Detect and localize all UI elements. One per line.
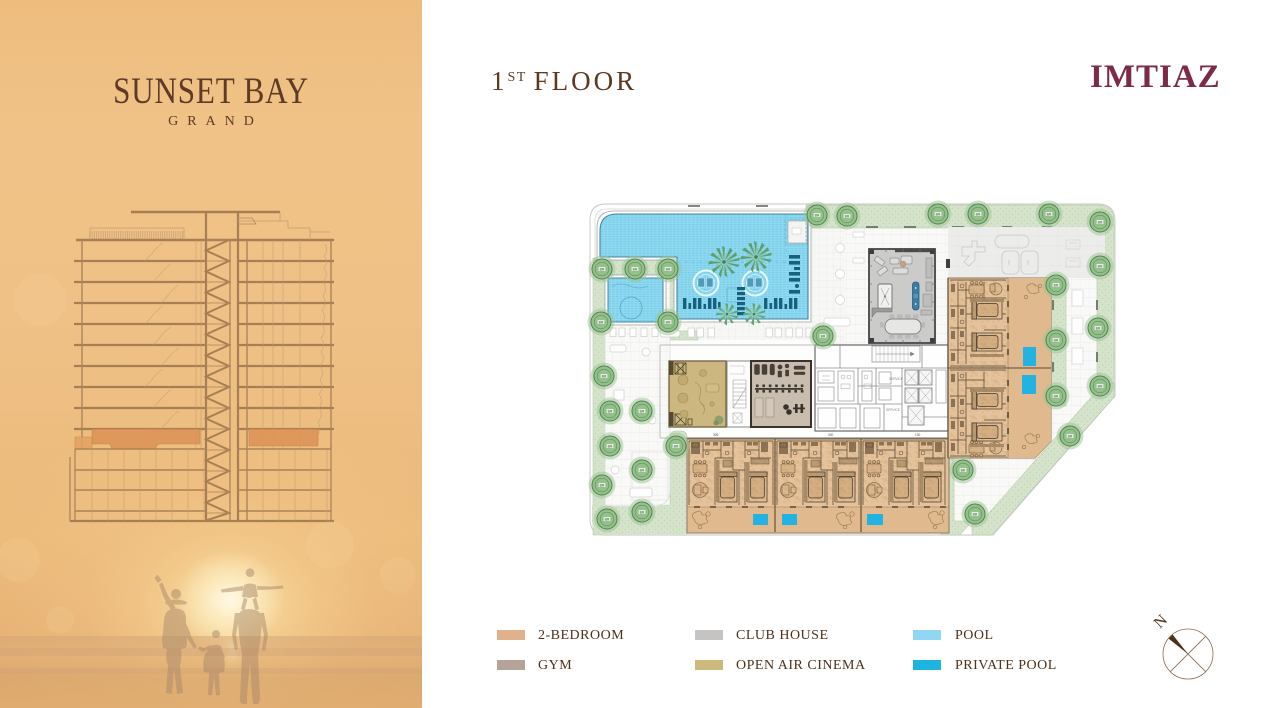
svg-text:SERVICE: SERVICE [889,377,903,381]
svg-text:N: N [1151,611,1172,632]
svg-text:300: 300 [828,433,834,437]
svg-text:SERVICE: SERVICE [886,408,900,412]
svg-text:305: 305 [713,433,719,437]
svg-text:130: 130 [915,433,921,437]
